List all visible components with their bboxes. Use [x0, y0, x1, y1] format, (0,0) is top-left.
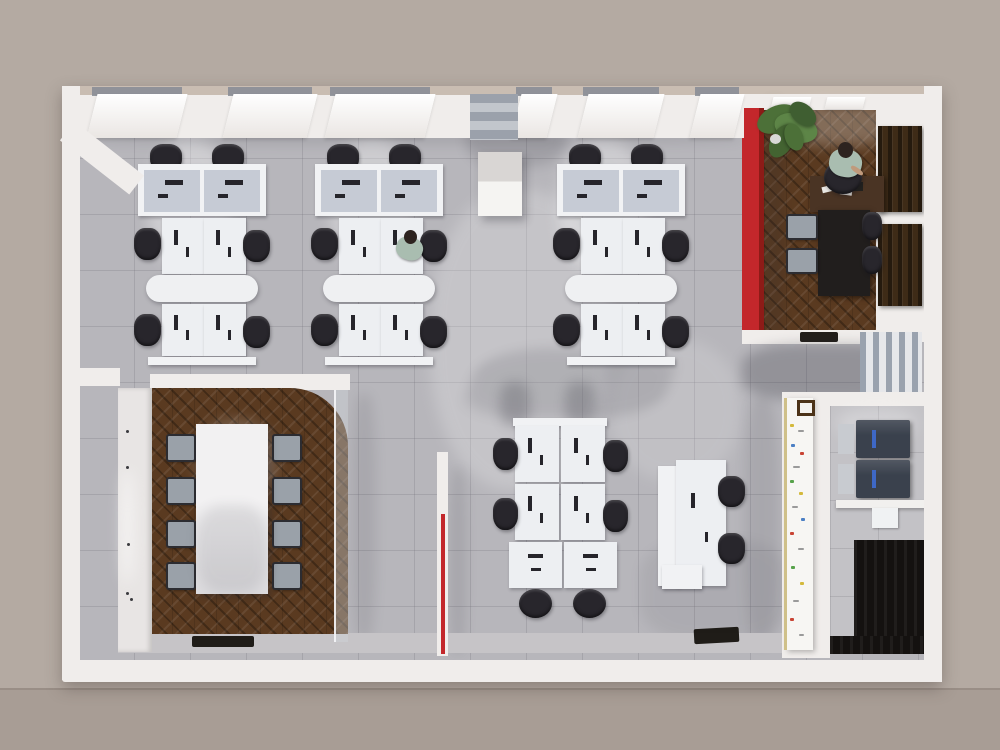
side-chair: [786, 214, 818, 240]
sticky-note: [798, 548, 804, 550]
sticky-note: [800, 582, 804, 585]
office-chair: [493, 498, 518, 530]
workstation-desk: [563, 170, 619, 212]
glass-wall: [334, 390, 348, 642]
office-chair: [603, 440, 628, 472]
printer-indicator: [872, 430, 876, 448]
bookshelf: [878, 126, 922, 212]
dark-decking: [830, 636, 926, 654]
office-chair: [718, 533, 745, 564]
workstation-desk: [204, 304, 246, 356]
office-chair: [662, 316, 689, 348]
window-sill: [223, 94, 318, 138]
office-chair: [243, 316, 270, 348]
office-chair: [718, 476, 745, 507]
meeting-pod-table: [323, 275, 435, 302]
meeting-pod-table: [565, 275, 677, 302]
person-head: [404, 230, 417, 244]
light-pool: [121, 470, 134, 582]
sticky-note: [791, 444, 795, 447]
shadow: [450, 468, 466, 654]
window-sill: [87, 94, 188, 138]
counter-shelf: [836, 500, 926, 508]
plant-pot: [770, 134, 781, 144]
storage-unit: [478, 152, 522, 216]
office-chair: [134, 314, 161, 346]
backdrop-lower: [0, 690, 1000, 750]
workstation-desk: [321, 170, 377, 212]
side-chair: [166, 520, 196, 548]
window-sill: [578, 94, 665, 138]
workstation-desk: [162, 218, 204, 274]
floor-mat: [694, 627, 740, 644]
floor-mat: [192, 636, 254, 647]
stair-louvers: [860, 332, 922, 398]
backdrop-seam: [0, 688, 1000, 690]
workstation-desk: [381, 304, 423, 356]
sticky-note: [792, 506, 798, 508]
side-chair: [272, 477, 302, 505]
office-chair: [519, 589, 552, 618]
sticky-note: [790, 480, 794, 483]
workstation-desk: [162, 304, 204, 356]
wall: [62, 368, 120, 386]
office-chair: [420, 230, 447, 262]
office-chair: [603, 500, 628, 532]
desk-partition: [325, 357, 433, 365]
handle-dot: [127, 543, 130, 546]
handle-dot: [126, 466, 129, 469]
whiteboard-frame: [784, 398, 787, 650]
workstation-desk: [515, 484, 559, 540]
workstation-desk: [623, 170, 679, 212]
workstation-desk: [381, 170, 437, 212]
printer-tray: [838, 464, 854, 494]
sticky-note: [798, 430, 804, 432]
handle-dot: [126, 592, 129, 595]
sticky-note: [800, 452, 804, 455]
meeting-pod-table: [146, 275, 258, 302]
sticky-note: [790, 618, 794, 621]
workstation-desk: [339, 218, 381, 274]
office-chair: [662, 230, 689, 262]
desk-partition: [513, 418, 607, 426]
office-floor-plan-render: [0, 0, 1000, 750]
workstation-desk: [564, 542, 617, 588]
desk-partition: [567, 357, 675, 365]
window-sill: [325, 94, 436, 138]
workstation-desk: [623, 304, 665, 356]
wall-frame: [797, 400, 815, 416]
workstation-desk: [623, 218, 665, 274]
office-chair: [134, 228, 161, 260]
side-chair: [166, 434, 196, 462]
office-chair: [573, 589, 606, 618]
workstation-desk: [515, 426, 559, 482]
sticky-note: [793, 466, 800, 468]
whiteboard-wall: [786, 398, 813, 650]
sticky-note: [793, 600, 799, 602]
office-chair: [553, 228, 580, 260]
floor-mat: [800, 332, 838, 342]
office-chair: [311, 228, 338, 260]
sticky-note: [790, 532, 794, 535]
window-sill: [825, 97, 866, 109]
workstation-desk: [581, 304, 623, 356]
stairwell: [470, 94, 518, 140]
side-chair: [786, 248, 818, 274]
side-chair: [272, 562, 302, 590]
side-chair: [166, 562, 196, 590]
shadow: [196, 505, 268, 593]
office-chair: [243, 230, 270, 262]
handle-dot: [126, 430, 129, 433]
side-chair: [272, 434, 302, 462]
printer-indicator: [872, 470, 876, 488]
workstation-desk: [561, 426, 605, 482]
handle-dot: [130, 598, 133, 601]
red-stripe: [441, 514, 445, 654]
shadow: [352, 394, 376, 640]
office-chair: [862, 246, 882, 274]
desk-partition: [662, 565, 702, 589]
printer-tray: [838, 424, 854, 454]
sticky-note: [790, 424, 794, 427]
right-outer-wall: [924, 86, 942, 682]
printer: [856, 460, 910, 498]
sticky-note: [799, 634, 804, 636]
sticky-note: [801, 518, 805, 521]
workstation-desk: [339, 304, 381, 356]
workstation-desk: [581, 218, 623, 274]
office-chair: [862, 212, 882, 240]
office-chair: [493, 438, 518, 470]
office-chair: [553, 314, 580, 346]
red-wall-edge: [759, 108, 764, 336]
printer: [856, 420, 910, 458]
office-chair: [420, 316, 447, 348]
side-chair: [272, 520, 302, 548]
bookshelf: [878, 224, 922, 306]
workstation-desk: [561, 484, 605, 540]
small-appliance: [872, 508, 898, 528]
bottom-outer-wall: [62, 660, 942, 680]
workstation-desk: [204, 218, 246, 274]
wall: [820, 392, 928, 406]
desk-partition: [148, 357, 256, 365]
sticky-note: [799, 492, 803, 495]
workstation-desk: [509, 542, 562, 588]
workstation-desk: [144, 170, 200, 212]
side-chair: [166, 477, 196, 505]
office-chair: [311, 314, 338, 346]
workstation-desk: [204, 170, 260, 212]
sticky-note: [791, 566, 795, 569]
